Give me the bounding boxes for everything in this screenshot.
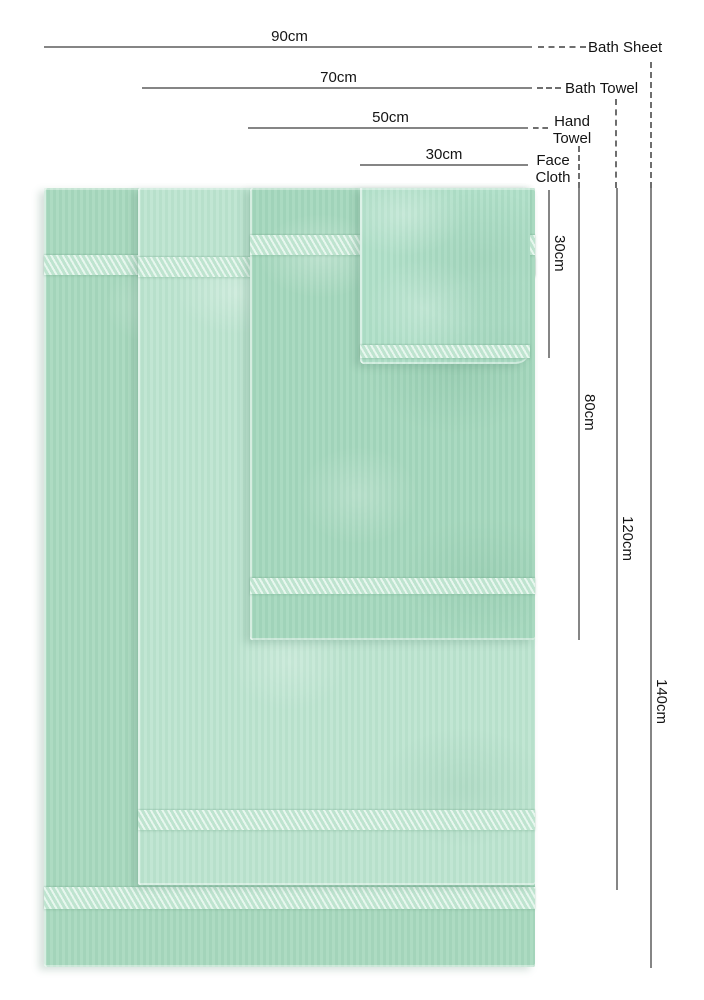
length-line-bath-sheet [650, 188, 652, 968]
width-line-bath-sheet [44, 46, 532, 48]
length-label-hand-towel: 80cm [581, 394, 598, 431]
connector-dash-hand-towel [533, 127, 548, 129]
width-label-hand-towel: 50cm [248, 109, 533, 126]
width-label-bath-towel: 70cm [142, 69, 535, 86]
length-line-face-cloth [548, 190, 550, 358]
width-line-bath-towel [142, 87, 532, 89]
width-line-hand-towel [248, 127, 528, 129]
connector-vdash-hand-towel [578, 146, 580, 188]
towel-name-hand-towel: Hand Towel [547, 113, 597, 147]
connector-vdash-bath-sheet [650, 62, 652, 188]
connector-dash-bath-sheet [538, 46, 586, 48]
length-label-face-cloth: 30cm [551, 235, 568, 272]
towel-name-face-cloth: Face Cloth [531, 152, 575, 186]
connector-dash-bath-towel [537, 87, 561, 89]
face-cloth-towel [360, 188, 530, 364]
bath-sheet-bottom-border-band [44, 887, 535, 909]
width-label-bath-sheet: 90cm [44, 28, 535, 45]
length-line-hand-towel [578, 188, 580, 640]
width-label-face-cloth: 30cm [360, 146, 528, 163]
towel-size-diagram: 90cm Bath Sheet 70cm Bath Towel 50cm Han… [0, 0, 704, 1000]
length-line-bath-towel [616, 188, 618, 890]
towel-name-bath-sheet: Bath Sheet [588, 39, 662, 56]
face-cloth-border-band [360, 345, 530, 358]
towel-name-bath-towel: Bath Towel [565, 80, 638, 97]
hand-towel-bottom-border-band [250, 578, 535, 594]
length-label-bath-sheet: 140cm [653, 679, 670, 724]
length-label-bath-towel: 120cm [619, 516, 636, 561]
connector-vdash-bath-towel [615, 99, 617, 188]
width-line-face-cloth [360, 164, 528, 166]
bath-towel-bottom-border-band [138, 810, 535, 830]
